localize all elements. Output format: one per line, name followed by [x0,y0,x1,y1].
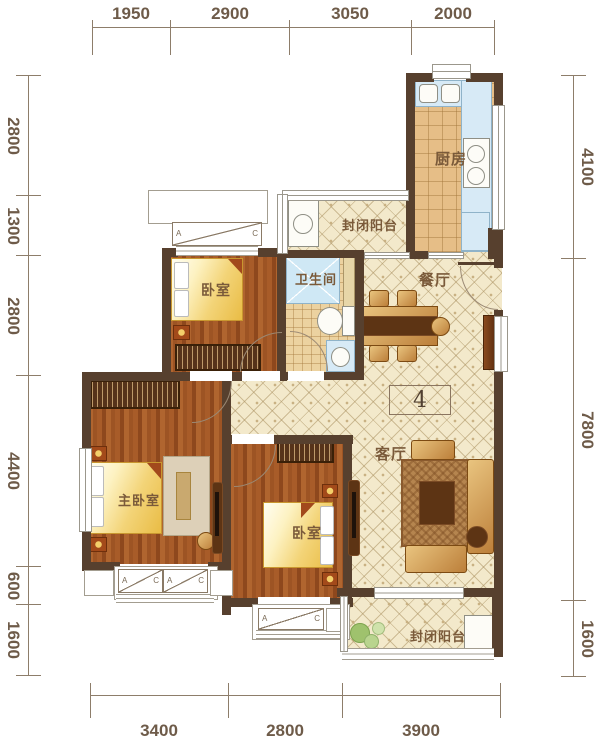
ac-letter-a: A [122,577,127,585]
balcony-top-window [282,190,409,201]
dim-top-0: 1950 [91,4,171,24]
pillow [174,262,189,289]
kitchen-top-window [432,64,471,79]
ac-letter-a: A [167,577,172,585]
bay-side-box [84,570,114,596]
balcony-bottom-label: 封闭阳台 [398,626,478,645]
bedroom-top-bay-window [148,190,268,224]
bay-side-box [210,570,233,596]
wall [280,250,364,258]
blanket-fold [147,463,161,479]
dining-label: 餐厅 [409,269,461,290]
bedroom-top-label: 卧室 [192,280,240,300]
balcony-dining-opening [364,252,410,259]
entry-door-leaf [458,262,498,265]
ac-letter-c: C [198,577,204,585]
living-bottom-window [374,587,464,599]
kitchen-sink-bowl [441,84,460,103]
dim-top-1: 2900 [190,4,270,24]
door-opening [190,371,232,381]
dim-tick [494,20,495,55]
balcony-top-label: 封闭阳台 [330,215,410,234]
dim-top-3: 2000 [413,4,493,24]
nightstand [173,325,190,340]
plant-icon [372,622,385,635]
dim-tick [561,258,586,259]
wall [355,250,364,380]
dim-tick [561,75,586,76]
kitchen-sink-bowl [419,84,438,103]
nightstand [322,484,338,498]
toilet-tank [342,306,355,336]
ac-window-panel: A C [163,569,208,593]
dining-table [360,316,438,336]
ac-window-panel: A C [172,222,262,246]
dim-left-4: 600 [3,556,23,616]
window-sill [116,594,214,603]
stove-burner-icon [467,167,485,185]
dim-tick [170,20,171,55]
washing-machine-drum [293,214,313,234]
dim-bottom-0: 3400 [119,721,199,741]
nightstand [90,446,107,461]
dining-chair [369,345,389,362]
dim-right-1: 7800 [577,400,597,460]
dim-tick [342,683,343,718]
dim-tick [500,683,501,718]
living-label: 客厅 [365,443,417,464]
dim-right-2: 1600 [577,609,597,669]
master-tv [215,492,219,536]
wall [494,248,503,268]
nightstand [322,572,338,586]
ac-letter-a: A [176,230,181,238]
balcony-bottom-left-window [340,596,348,652]
unit-number-box: 4 [389,385,451,415]
living-tv [352,492,356,538]
bathroom-label: 卫生间 [285,269,347,288]
blanket-fold [301,503,315,518]
dim-tick [16,675,41,676]
unit-number: 4 [413,388,427,413]
dim-left-1: 1300 [3,196,23,256]
bathroom-sink-basin [331,347,350,367]
balcony-bottom-window [342,648,494,660]
ac-window-panel: A C [258,608,324,630]
dining-chair [397,345,417,362]
window-sill [176,246,258,256]
dim-tick [16,375,41,376]
armchair [411,440,455,460]
dim-left-3: 4400 [3,441,23,501]
master-left-window [79,448,92,532]
kitchen-right-window [492,105,505,230]
toilet-bowl [317,307,343,335]
dining-chair [369,290,389,307]
dim-left-5: 1600 [3,610,23,670]
dim-tick [228,683,229,718]
dim-left-0: 2800 [3,106,23,166]
ac-window-panel: A C [118,569,163,593]
bed-bench-inner [176,472,191,520]
door-opening [288,371,324,381]
dining-right-window [494,316,508,372]
dim-left-2: 2800 [3,286,23,346]
kitchen-fridge [461,212,490,251]
door-opening [232,434,274,444]
wall [494,73,503,105]
bedroom-second-label: 卧室 [283,523,331,543]
wall [82,372,91,450]
nightstand [90,537,107,552]
master-bedroom-label: 主卧室 [108,490,170,509]
dim-tick [90,683,91,718]
dim-bottom-2: 3900 [381,721,461,741]
side-table [466,526,488,548]
blanket-fold [228,259,242,274]
dim-tick [561,600,586,601]
dim-tick [289,20,290,55]
ac-letter-c: C [314,615,320,623]
master-wardrobe [90,380,180,409]
dim-line-right [573,75,574,676]
dim-tick [16,75,41,76]
ac-letter-a: A [262,615,267,623]
plant-icon [364,634,379,649]
ac-letter-c: C [252,230,258,238]
coffee-table [419,481,455,525]
dim-line-top [92,27,494,28]
dim-tick [561,676,586,677]
wall [162,248,171,381]
door-opening [242,371,280,381]
ac-letter-c: C [153,577,159,585]
dim-tick [92,20,93,55]
balcony-top-left-window [277,194,288,254]
dim-top-2: 3050 [310,4,390,24]
sofa-bottom [405,545,467,573]
dim-line-bottom [90,695,500,696]
kitchen-pass-opening [428,252,464,259]
dining-chair [431,317,450,336]
dim-right-0: 4100 [577,137,597,197]
dim-tick [411,20,412,55]
kitchen-label: 厨房 [420,148,482,169]
dining-chair [397,290,417,307]
dim-bottom-1: 2800 [245,721,325,741]
pillow [174,290,189,317]
floor-plan: A C A C A C A C 厨房 封闭阳台 餐厅 卫生间 卧室 主卧室 卧室… [0,0,600,746]
